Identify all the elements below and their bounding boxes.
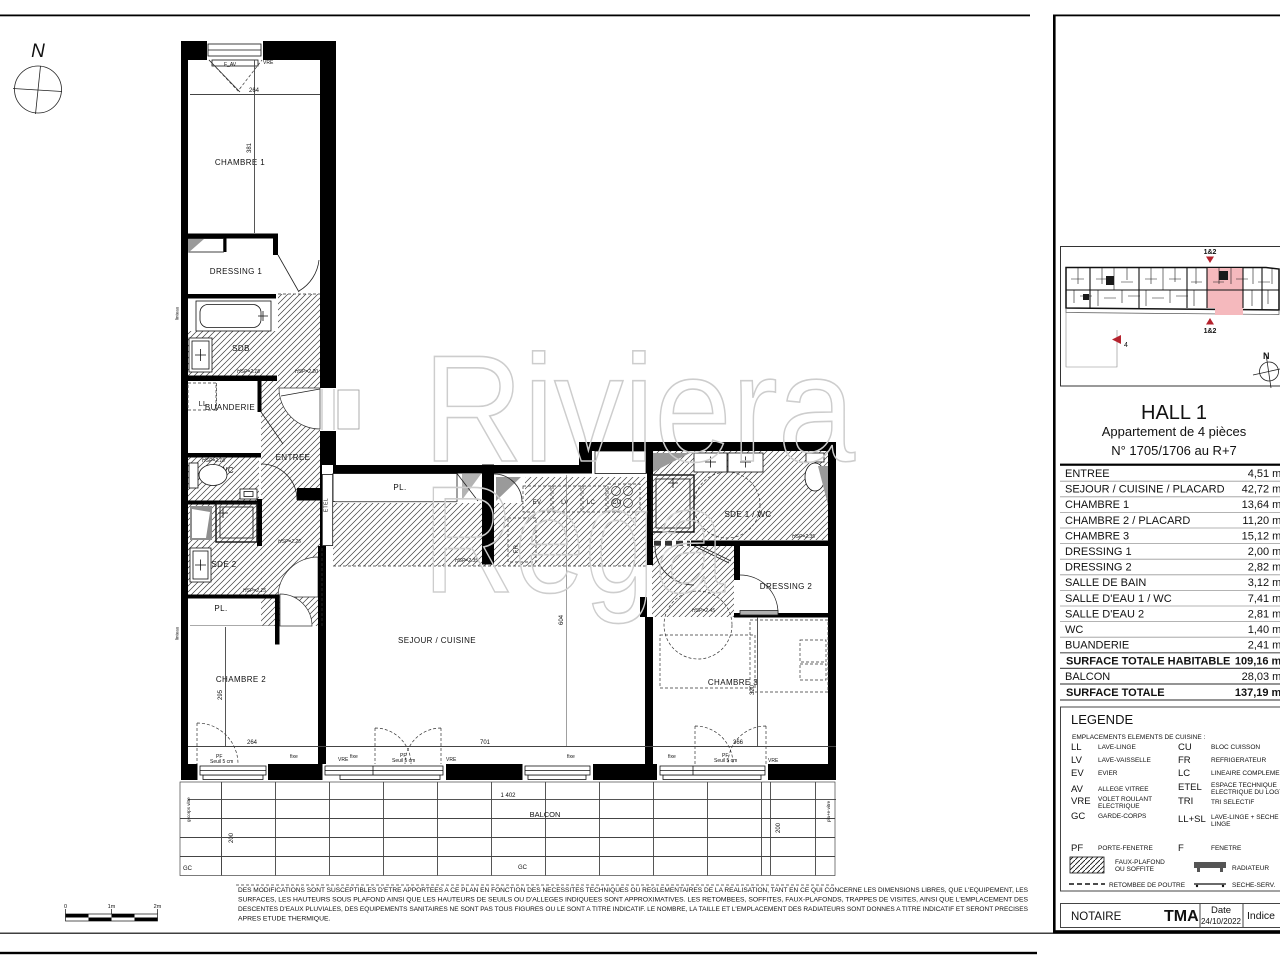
svg-text:SECHE-SERV.: SECHE-SERV.	[1232, 882, 1276, 889]
svg-text:Indice: Indice	[1247, 910, 1275, 922]
svg-text:LINEAIRE COMPLEMENTAIRE: LINEAIRE COMPLEMENTAIRE	[1211, 770, 1280, 777]
svg-text:1m: 1m	[108, 904, 116, 910]
svg-text:HSP=2.15: HSP=2.15	[243, 588, 266, 594]
svg-text:HSP=2.18: HSP=2.18	[237, 369, 260, 375]
svg-text:GC: GC	[183, 866, 193, 872]
svg-text:SURFACE TOTALE HABITABLE: SURFACE TOTALE HABITABLE	[1066, 656, 1230, 668]
svg-text:DESCENTES D'EAUX PLUVIALES, DE: DESCENTES D'EAUX PLUVIALES, DES EQUIPEME…	[238, 906, 1028, 913]
svg-text:1,40 m²: 1,40 m²	[1248, 624, 1280, 636]
svg-text:15,12 m²: 15,12 m²	[1242, 530, 1280, 542]
svg-text:701: 701	[480, 740, 491, 746]
svg-text:42,72 m²: 42,72 m²	[1242, 484, 1280, 496]
svg-text:GC: GC	[518, 865, 528, 871]
svg-text:13,64 m²: 13,64 m²	[1242, 499, 1280, 511]
svg-text:fixe: fixe	[290, 754, 298, 760]
svg-text:ELECTRIQUE DU LOGT: ELECTRIQUE DU LOGT	[1211, 789, 1280, 796]
svg-text:366: 366	[733, 740, 744, 746]
svg-text:264: 264	[247, 740, 258, 746]
svg-text:F_AV: F_AV	[224, 62, 237, 68]
svg-text:ENTREE: ENTREE	[276, 453, 311, 462]
svg-text:PL.: PL.	[214, 604, 227, 613]
svg-text:PF: PF	[1071, 843, 1083, 854]
svg-text:2,81 m²: 2,81 m²	[1248, 608, 1280, 620]
svg-text:Rega: Rega	[423, 455, 725, 625]
svg-text:SEJOUR / CUISINE / PLACARD: SEJOUR / CUISINE / PLACARD	[1065, 484, 1225, 496]
svg-text:DRESSING 1: DRESSING 1	[1065, 546, 1132, 558]
svg-text:LC: LC	[1178, 768, 1190, 779]
svg-text:APRES ETUDE THERMIQUE.: APRES ETUDE THERMIQUE.	[238, 916, 331, 923]
svg-text:LAVE-VAISSELLE: LAVE-VAISSELLE	[1098, 757, 1152, 764]
svg-text:FAUX-PLAFOND: FAUX-PLAFOND	[1115, 859, 1165, 866]
svg-text:PL.: PL.	[393, 483, 406, 492]
svg-text:SDE 1 / WC: SDE 1 / WC	[724, 510, 771, 519]
svg-text:linteau: linteau	[175, 306, 180, 320]
svg-text:BALCON: BALCON	[1065, 671, 1110, 683]
svg-text:RADIATEUR: RADIATEUR	[1232, 865, 1269, 872]
svg-text:CU: CU	[1178, 742, 1192, 753]
svg-text:SALLE D'EAU 2: SALLE D'EAU 2	[1065, 608, 1144, 620]
svg-text:Date: Date	[1211, 905, 1231, 916]
svg-text:28,03 m²: 28,03 m²	[1242, 671, 1280, 683]
svg-text:VRE: VRE	[338, 757, 349, 763]
svg-text:264: 264	[249, 88, 260, 94]
svg-text:320: 320	[750, 684, 756, 695]
svg-text:TRI: TRI	[1178, 796, 1193, 807]
svg-text:LAVE-LINGE + SECHE: LAVE-LINGE + SECHE	[1211, 814, 1279, 821]
svg-text:CHAMBRE 1: CHAMBRE 1	[1065, 499, 1129, 511]
svg-text:381: 381	[247, 142, 253, 153]
svg-text:SALLE DE BAIN: SALLE DE BAIN	[1065, 577, 1146, 589]
svg-text:fixe: fixe	[567, 754, 575, 760]
svg-text:CHAMBRE 2 / PLACARD: CHAMBRE 2 / PLACARD	[1065, 515, 1190, 527]
svg-text:295: 295	[218, 689, 224, 700]
svg-text:RETOMBEE DE POUTRE: RETOMBEE DE POUTRE	[1109, 882, 1186, 889]
svg-text:ENTREE: ENTREE	[1065, 468, 1110, 480]
svg-text:SDE 2: SDE 2	[211, 560, 236, 569]
svg-text:1&2: 1&2	[1204, 328, 1217, 335]
svg-text:DES MODIFICATIONS SONT SUSCEPT: DES MODIFICATIONS SONT SUSCEPTIBLES D'ET…	[238, 887, 1028, 894]
svg-text:F: F	[1178, 843, 1184, 854]
svg-text:EMPLACEMENTS ELEMENTS DE CUISI: EMPLACEMENTS ELEMENTS DE CUISINE :	[1072, 734, 1205, 741]
svg-text:VRE: VRE	[263, 60, 274, 66]
svg-text:BUANDERIE: BUANDERIE	[1065, 640, 1129, 652]
svg-text:1&2: 1&2	[1204, 249, 1217, 256]
svg-text:0: 0	[64, 904, 67, 910]
svg-text:ALLEGE VITREE: ALLEGE VITREE	[1098, 786, 1149, 793]
svg-text:VRE: VRE	[768, 758, 779, 764]
svg-text:HSP=2.35: HSP=2.35	[792, 534, 815, 540]
svg-text:2,82 m²: 2,82 m²	[1248, 562, 1280, 574]
svg-text:ETEL: ETEL	[324, 498, 330, 512]
svg-text:3,12 m²: 3,12 m²	[1248, 577, 1280, 589]
svg-text:DRESSING 1: DRESSING 1	[210, 267, 263, 276]
svg-text:Seuil 5 cm: Seuil 5 cm	[210, 759, 233, 765]
svg-text:SEJOUR / CUISINE: SEJOUR / CUISINE	[398, 636, 476, 645]
svg-text:TMA: TMA	[1164, 908, 1199, 925]
svg-text:N: N	[1263, 351, 1270, 361]
svg-text:linteau: linteau	[175, 626, 180, 640]
svg-text:SDB: SDB	[232, 344, 250, 353]
svg-text:EV: EV	[1071, 768, 1084, 779]
svg-text:LAVE-LINGE: LAVE-LINGE	[1098, 744, 1136, 751]
svg-text:SALLE D'EAU 1 / WC: SALLE D'EAU 1 / WC	[1065, 593, 1172, 605]
svg-text:CHAMBRE 1: CHAMBRE 1	[215, 158, 265, 167]
svg-text:DRESSING 2: DRESSING 2	[1065, 562, 1132, 574]
svg-text:137,19 m²: 137,19 m²	[1235, 687, 1280, 699]
svg-text:OU SOFFITE: OU SOFFITE	[1115, 866, 1155, 873]
svg-text:ETEL: ETEL	[1178, 782, 1202, 793]
svg-text:WC: WC	[1065, 624, 1083, 636]
svg-text:2,41 m²: 2,41 m²	[1248, 640, 1280, 652]
svg-text:2,00 m²: 2,00 m²	[1248, 546, 1280, 558]
svg-text:7,41 m²: 7,41 m²	[1248, 593, 1280, 605]
svg-text:NOTAIRE: NOTAIRE	[1071, 911, 1122, 923]
svg-text:CHAMBRE 3: CHAMBRE 3	[1065, 530, 1129, 542]
svg-text:LL+SL: LL+SL	[1178, 814, 1206, 825]
svg-text:Seuil 5 cm: Seuil 5 cm	[714, 758, 737, 764]
svg-text:fixe: fixe	[350, 754, 358, 760]
svg-text:HSP=2.18: HSP=2.18	[202, 458, 225, 464]
svg-text:REFRIGERATEUR: REFRIGERATEUR	[1211, 757, 1266, 764]
svg-text:LL: LL	[1071, 742, 1082, 753]
svg-text:TRI SELECTIF: TRI SELECTIF	[1211, 799, 1254, 806]
svg-text:2m: 2m	[154, 904, 162, 910]
svg-text:4: 4	[1124, 342, 1128, 349]
svg-text:BLOC CUISSON: BLOC CUISSON	[1211, 744, 1260, 751]
svg-text:Seuil 5 cm: Seuil 5 cm	[392, 758, 415, 764]
svg-text:VRE: VRE	[446, 757, 457, 763]
svg-text:fixe: fixe	[668, 754, 676, 760]
svg-text:FR: FR	[1178, 755, 1191, 766]
svg-text:N: N	[31, 41, 45, 62]
svg-text:ELECTRIQUE: ELECTRIQUE	[1098, 803, 1140, 810]
svg-text:SURFACE TOTALE: SURFACE TOTALE	[1066, 687, 1165, 699]
svg-text:BALCON: BALCON	[530, 810, 561, 819]
svg-text:CHAMBRE 2: CHAMBRE 2	[216, 675, 266, 684]
svg-text:pla+e-vitre: pla+e-vitre	[826, 800, 831, 822]
svg-text:N° 1705/1706 au R+7: N° 1705/1706 au R+7	[1111, 443, 1237, 458]
svg-text:VOLET ROULANT: VOLET ROULANT	[1098, 796, 1152, 803]
svg-text:LV: LV	[1071, 755, 1083, 766]
svg-text:SURFACES, LES HAUTEURS SOUS PL: SURFACES, LES HAUTEURS SOUS PLAFOND AINS…	[238, 897, 1028, 904]
svg-text:LINGE: LINGE	[1211, 821, 1231, 828]
svg-text:EVIER: EVIER	[1098, 770, 1118, 777]
svg-text:HALL 1: HALL 1	[1141, 402, 1207, 424]
svg-text:HSP=2.20: HSP=2.20	[295, 369, 318, 375]
svg-text:Appartement de 4 pièces: Appartement de 4 pièces	[1102, 424, 1247, 439]
svg-text:ESPACE TECHNIQUE: ESPACE TECHNIQUE	[1211, 782, 1278, 789]
svg-text:AV: AV	[1071, 784, 1084, 795]
svg-text:200: 200	[776, 822, 782, 833]
svg-text:GARDE-CORPS: GARDE-CORPS	[1098, 813, 1147, 820]
svg-text:24/10/2022: 24/10/2022	[1201, 917, 1242, 926]
svg-text:1 402: 1 402	[500, 793, 516, 799]
svg-text:HSP=2.25: HSP=2.25	[278, 539, 301, 545]
svg-text:g-corps vitre: g-corps vitre	[186, 797, 191, 822]
svg-text:BUANDERIE: BUANDERIE	[205, 403, 255, 412]
svg-text:FENETRE: FENETRE	[1211, 845, 1242, 852]
svg-text:109,16 m²: 109,16 m²	[1235, 656, 1280, 668]
svg-text:VRE: VRE	[1071, 796, 1091, 807]
svg-text:GC: GC	[1071, 811, 1085, 822]
svg-text:11,20 m²: 11,20 m²	[1242, 515, 1280, 527]
svg-text:4,51 m²: 4,51 m²	[1248, 468, 1280, 480]
svg-text:PORTE-FENETRE: PORTE-FENETRE	[1098, 845, 1153, 852]
svg-text:LEGENDE: LEGENDE	[1071, 712, 1133, 727]
